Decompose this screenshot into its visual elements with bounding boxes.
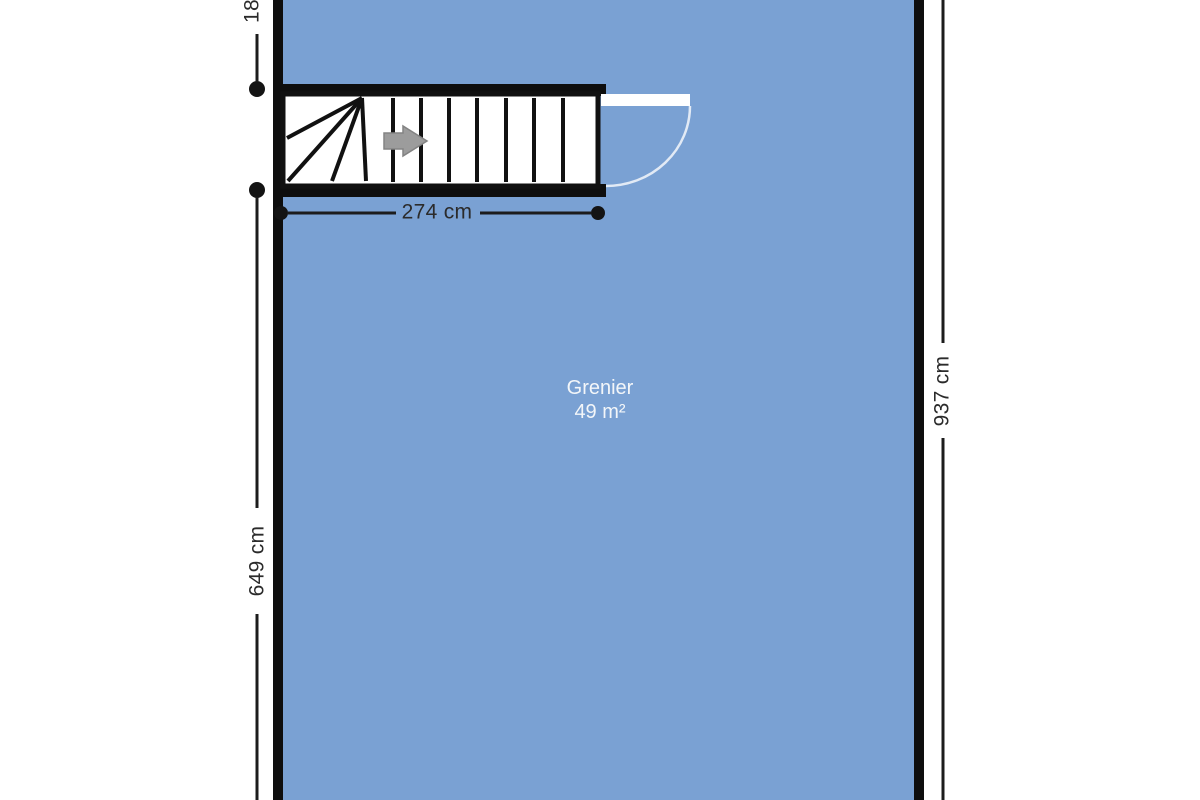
dimension-label-stair-width: 274 cm xyxy=(402,202,473,223)
room-area-label: 49 m² xyxy=(574,402,625,422)
floorplan-canvas xyxy=(0,0,1200,800)
dimension-label-right-height: 937 cm xyxy=(932,356,953,427)
dimension-endpoint-dot xyxy=(249,182,265,198)
dimension-label-left-height: 649 cm xyxy=(247,526,268,597)
room-name-label: Grenier xyxy=(567,378,634,398)
dimension-endpoint-dot xyxy=(591,206,605,220)
floorplan: Grenier 49 m² 274 cm 937 cm 649 cm 18 xyxy=(0,0,1200,800)
dimension-endpoint-dot xyxy=(274,206,288,220)
wall-right xyxy=(914,0,924,800)
staircase xyxy=(273,84,606,197)
door-leaf xyxy=(601,94,690,106)
dimension-label-top-left-partial: 18 xyxy=(242,0,263,23)
stair-body xyxy=(283,94,598,186)
dimension-endpoint-dot xyxy=(249,81,265,97)
